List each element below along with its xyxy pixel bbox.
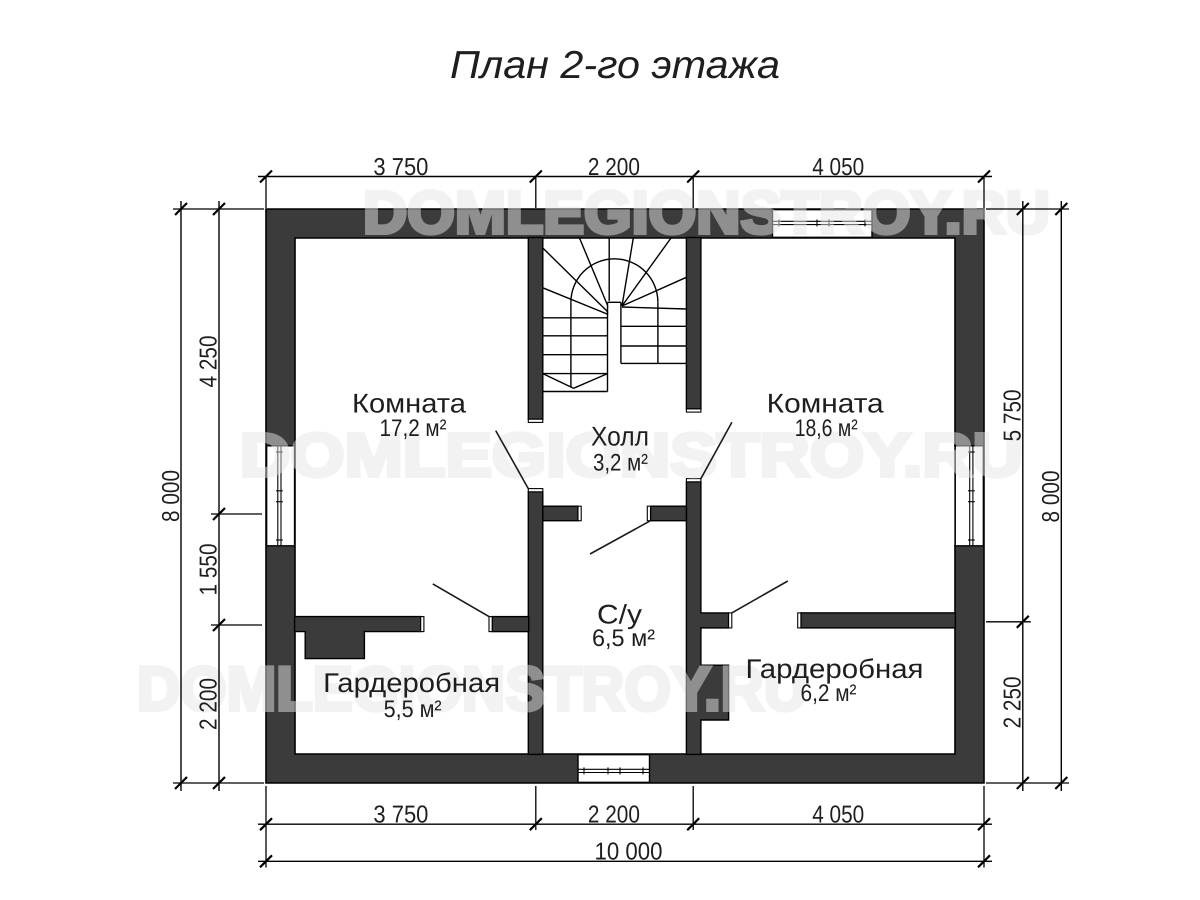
svg-text:5 750: 5 750 (999, 389, 1026, 441)
svg-text:Холл: Холл (591, 422, 649, 452)
svg-text:4 250: 4 250 (196, 336, 223, 388)
svg-text:3 750: 3 750 (373, 801, 428, 828)
svg-text:3,2 м²: 3,2 м² (593, 450, 648, 477)
svg-text:8 000: 8 000 (158, 470, 185, 522)
svg-text:2 200: 2 200 (196, 678, 223, 730)
svg-text:2 200: 2 200 (588, 801, 640, 828)
svg-text:10 000: 10 000 (595, 839, 663, 866)
svg-text:17,2 м²: 17,2 м² (380, 415, 447, 442)
svg-text:1 550: 1 550 (196, 544, 223, 596)
svg-text:18,6 м²: 18,6 м² (795, 415, 858, 442)
svg-text:Гардеробная: Гардеробная (323, 668, 500, 698)
svg-text:4 050: 4 050 (812, 154, 864, 181)
svg-text:План 2-го этажа: План 2-го этажа (450, 44, 780, 87)
svg-text:DOMLEGIONSTROY.RU: DOMLEGIONSTROY.RU (363, 179, 1050, 246)
svg-text:6,5 м²: 6,5 м² (592, 625, 655, 652)
svg-text:2 250: 2 250 (999, 676, 1026, 728)
svg-text:8 000: 8 000 (1038, 471, 1065, 523)
svg-text:6,2 м²: 6,2 м² (801, 680, 857, 707)
svg-text:5,5 м²: 5,5 м² (384, 696, 442, 723)
svg-text:3 750: 3 750 (373, 154, 428, 181)
svg-text:4 050: 4 050 (812, 801, 864, 828)
svg-text:2 200: 2 200 (588, 154, 640, 181)
